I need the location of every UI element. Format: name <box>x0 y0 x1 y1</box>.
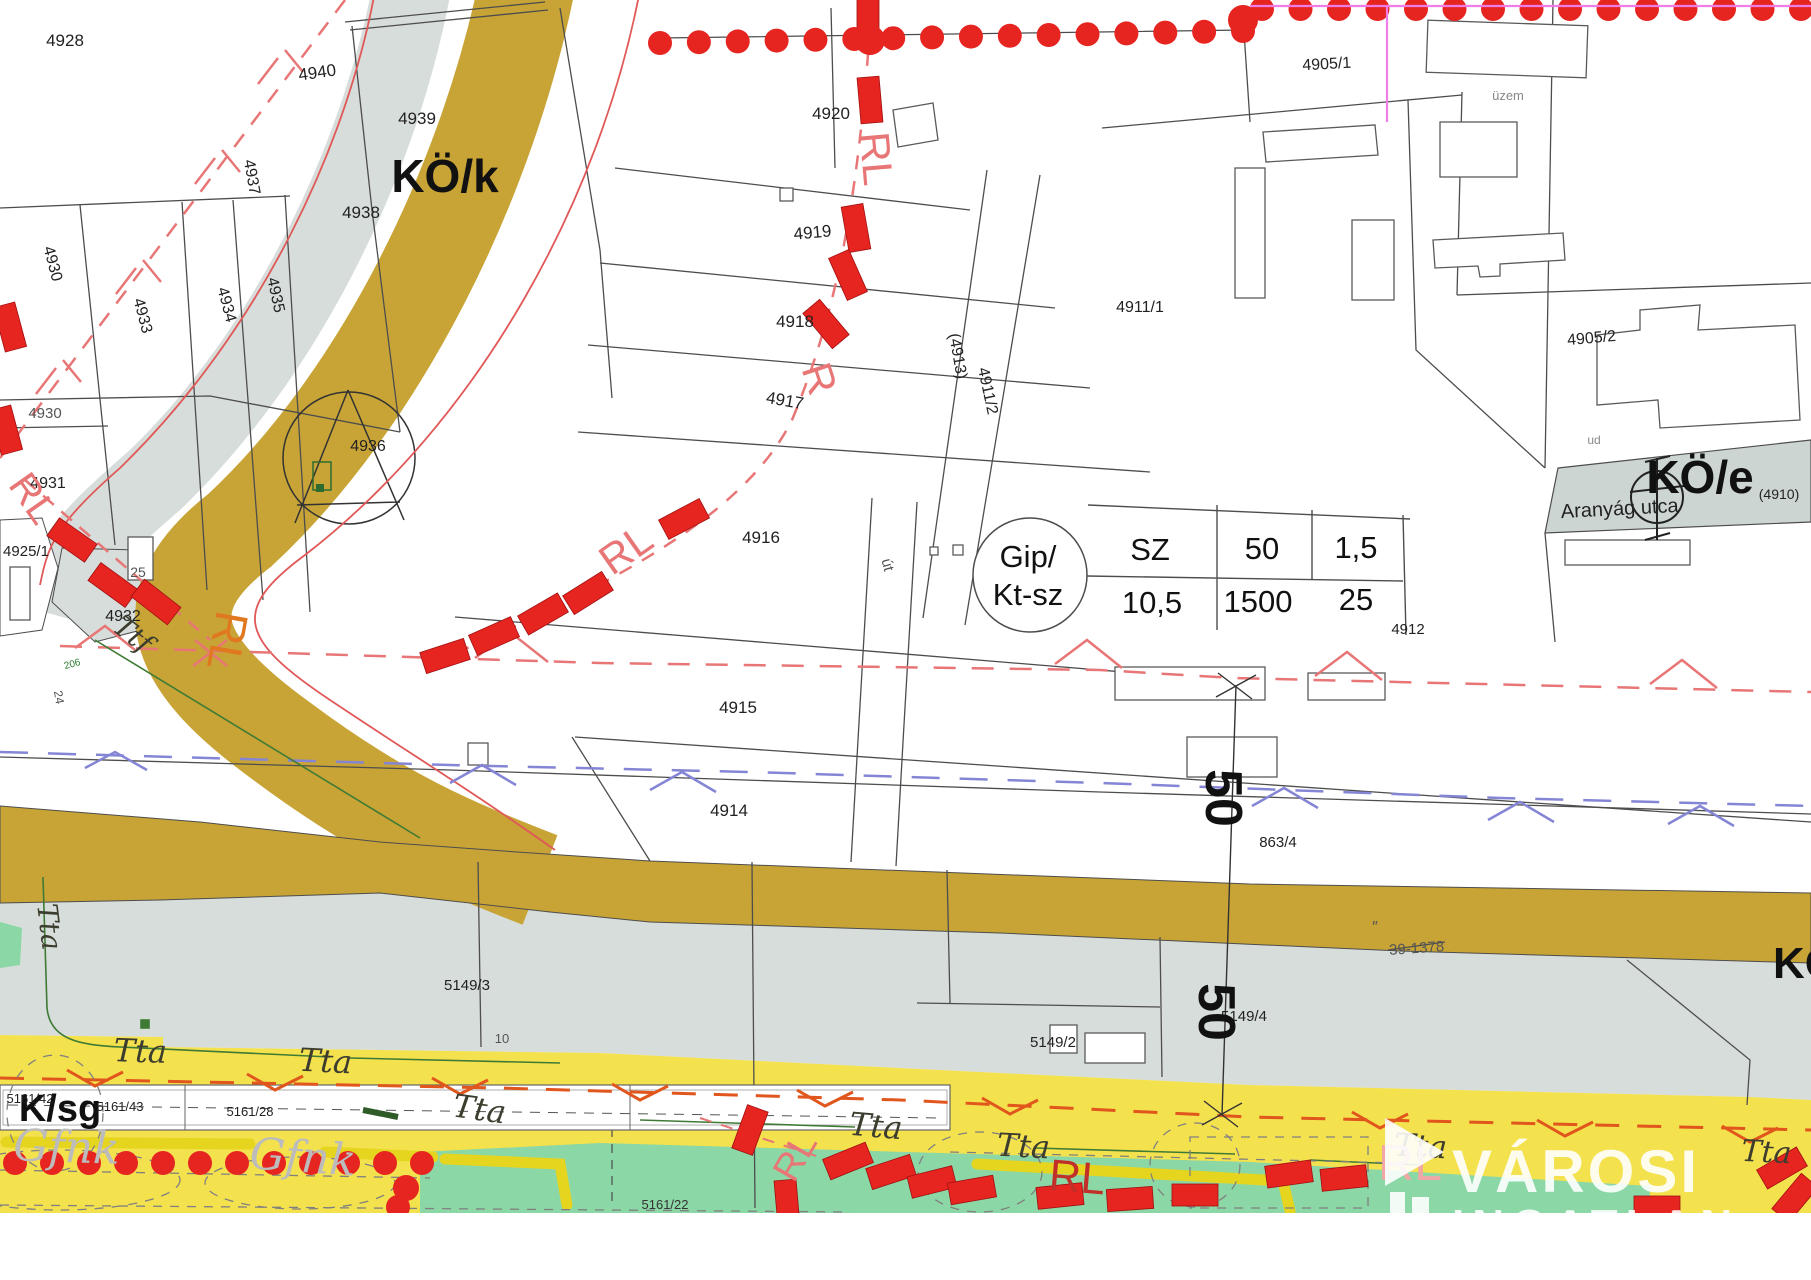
label-dim-50-bottom: 50 <box>1187 983 1245 1041</box>
red-dot <box>726 29 750 53</box>
label-parcel-5161-28: 5161/28 <box>227 1104 274 1119</box>
table-circle-line2: Kt-sz <box>993 577 1064 612</box>
label-note-uzem: üzem <box>1492 88 1524 103</box>
red-dot <box>1037 23 1061 47</box>
label-parcel-4916: 4916 <box>742 528 780 547</box>
red-dot <box>920 25 944 49</box>
label-parcel-4914: 4914 <box>710 801 748 820</box>
label-parcel-4918: 4918 <box>776 312 814 331</box>
label-note-quote: ″ <box>1372 919 1378 936</box>
label-parcel-4930: 4930 <box>28 405 61 422</box>
label-parcel-5161-42: 5161/42 <box>7 1091 54 1106</box>
table-cell-1-5: 1,5 <box>1334 530 1377 565</box>
label-parcel-10: 10 <box>495 1031 509 1046</box>
rl-block <box>857 76 883 124</box>
label-zone-ko-k: KÖ/k <box>391 150 499 202</box>
zoning-map: Gip/ Kt-sz SZ 50 1,5 10,5 1500 25 KÖ/kKÖ… <box>0 0 1811 1280</box>
label-tta-7: Tta <box>1741 1134 1793 1172</box>
label-gfnk-2: Gfnk <box>248 1128 358 1186</box>
zone-green-sliver <box>0 922 22 968</box>
table-cell-10-5: 10,5 <box>1122 585 1182 620</box>
label-parcel-4928: 4928 <box>46 31 84 50</box>
red-dot <box>998 24 1022 48</box>
label-tta-3: Tta <box>451 1087 509 1132</box>
table-circle-line1: Gip/ <box>1000 539 1057 574</box>
red-dot <box>1228 5 1258 35</box>
red-dot <box>687 30 711 54</box>
label-parcel-4905-1: 4905/1 <box>1302 55 1352 75</box>
red-dot <box>1153 21 1177 45</box>
red-dot <box>648 31 672 55</box>
table-cell-50: 50 <box>1245 531 1279 566</box>
red-dot <box>803 28 827 52</box>
label-parcel-863-4: 863/4 <box>1259 834 1297 851</box>
label-parcel-4912: 4912 <box>1391 621 1424 638</box>
label-parcel-4920: 4920 <box>812 104 850 123</box>
label-parcel-24: 24 <box>51 690 67 706</box>
red-dot <box>151 1151 175 1175</box>
red-dot <box>1114 21 1138 45</box>
label-dim-50-top: 50 <box>1194 769 1252 827</box>
label-tta-v: Tta <box>30 902 68 952</box>
table-cell-1500: 1500 <box>1224 584 1293 619</box>
red-dot <box>1192 20 1216 44</box>
label-parcel-5149-3: 5149/3 <box>444 977 490 994</box>
label-parcel-5149-2: 5149/2 <box>1030 1034 1076 1051</box>
label-rl-orange: RL <box>197 607 258 674</box>
label-zone-k-partial: KÖ <box>1773 939 1811 988</box>
label-parcel-4915: 4915 <box>719 698 757 717</box>
varosi-logo-title: VÁROSI <box>1452 1138 1700 1205</box>
label-tta-1: Tta <box>113 1031 168 1071</box>
label-parcel-25: 25 <box>130 564 146 580</box>
red-dot <box>410 1151 434 1175</box>
red-dot <box>959 25 983 49</box>
label-street-4910: (4910) <box>1759 486 1799 502</box>
label-rl-6: RL <box>1047 1151 1107 1205</box>
label-parcel-4936: 4936 <box>350 438 386 455</box>
label-tta-5: Tta <box>996 1126 1051 1167</box>
label-parcel-4925-1: 4925/1 <box>3 543 49 560</box>
label-note-ud: ud <box>1587 433 1600 447</box>
label-parcel-4911-1: 4911/1 <box>1116 299 1164 316</box>
label-parcel-4919: 4919 <box>793 221 832 243</box>
red-dot <box>855 25 885 55</box>
red-dot <box>765 29 789 53</box>
rl-block <box>1172 1184 1218 1206</box>
table-cell-25: 25 <box>1339 582 1373 617</box>
label-tta-2: Tta <box>298 1041 353 1082</box>
rl-block <box>1320 1165 1368 1192</box>
bottom-white-strip <box>0 1213 1811 1280</box>
map-canvas: Gip/ Kt-sz SZ 50 1,5 10,5 1500 25 KÖ/kKÖ… <box>0 0 1811 1280</box>
red-dot <box>188 1151 212 1175</box>
label-parcel-4939: 4939 <box>398 109 436 128</box>
label-rl-1: RL <box>851 130 903 188</box>
red-dot <box>1076 22 1100 46</box>
label-parcel-5161-22: 5161/22 <box>642 1197 689 1212</box>
table-cell-sz: SZ <box>1130 532 1170 567</box>
label-gfnk-1: Gfnk <box>12 1120 120 1175</box>
label-parcel-5161-43: 5161/43 <box>97 1099 144 1114</box>
red-dot <box>373 1151 397 1175</box>
red-dot <box>225 1151 249 1175</box>
label-tta-4: Tta <box>848 1105 904 1147</box>
rl-block <box>1106 1186 1153 1211</box>
label-parcel-4938: 4938 <box>342 203 380 222</box>
